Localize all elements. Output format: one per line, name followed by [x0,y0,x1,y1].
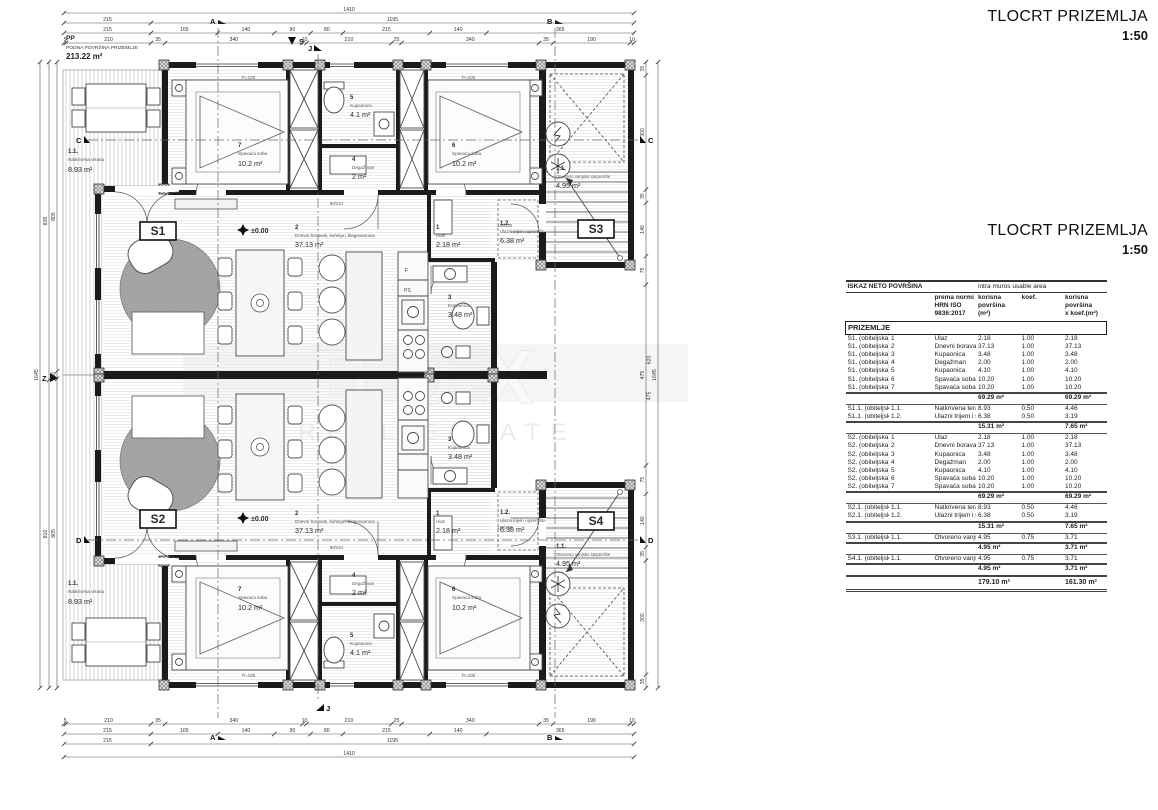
table-cell: Kupaonica [933,451,977,459]
table-cell: 2.18 [976,334,1020,343]
table-cell: Spavaća soba [933,376,977,384]
table-cell: Kupaonica [933,467,977,475]
dim-row-top-1: 1410 [62,7,636,15]
table-cell: 1.00 [1020,359,1064,367]
table-cell: 1.00 [1020,343,1064,351]
table-cell: 3.48 [1063,351,1107,359]
table-cell: 2 [889,343,933,351]
pp-label: PP [66,35,75,42]
room-name: Kupaonica [350,641,372,646]
table-cell: S1. (obiteljska) [846,343,890,351]
dim-label: 80 [324,728,330,734]
table-cell: 3.71 [1063,554,1107,564]
west-marker-label: Z [42,374,47,383]
room-name: Ulazni trijem i spremište [500,229,546,234]
table-cell: 37.13 [976,442,1020,450]
unit-tag-s2: S2 [151,512,166,526]
dim-label: 5 [64,718,67,724]
table-cell: 5 [889,467,933,475]
door-dim-label: 140/220 [497,525,513,530]
dim-label: 20 [51,372,57,378]
dim-label: 80 [324,27,330,33]
room-area: 10.2 m² [452,603,477,612]
dim-label: 215 [382,728,391,734]
dim-label-475: 475 [647,392,653,401]
table-cell: 7.65 m² [1063,522,1107,534]
table-cell: 10.20 [1063,376,1107,384]
table-cell: 2.00 [976,359,1020,367]
table-cell: 1.00 [1020,475,1064,483]
dim-label: 35 [640,66,646,72]
table-cell: 69.29 m² [976,492,1020,504]
table-row: S1.1. (obiteljska)1.2.Ulazni trijem i sp… [846,413,1107,422]
dim-row-top-4: 52103534010210253403519010 [62,37,636,45]
axis-b-top-label: B [547,17,553,26]
door-dim-label: 140/220 [497,223,513,228]
room-area: 10.2 m² [238,159,263,168]
room-area: 3.48 m² [448,310,473,319]
room-area: 6.38 m² [500,236,525,245]
col-header-area-koef: korisna površina x koef.(m²) [1063,293,1107,321]
table-cell: 1.00 [1020,442,1064,450]
table-row: S1. (obiteljska)3Kupaonica3.481.003.48 [846,351,1107,359]
table-cell: 10.20 [976,475,1020,483]
table-cell: 10.20 [1063,384,1107,393]
drawing-title-text: TLOCRT PRIZEMLJA [987,8,1148,26]
table-cell [1020,422,1064,434]
table-row: S1. (obiteljska)1Ulaz2.181.002.18 [846,334,1107,343]
table-row: S2. (obiteljska)4Degažman2.001.002.00 [846,459,1107,467]
dim-label: 10 [629,37,635,43]
table-title-hr: ISKAZ NETO POVRŠINA [846,281,977,293]
dim-label: 340 [466,37,475,43]
table-cell: 3.48 [976,451,1020,459]
table-cell: 1.00 [1020,459,1064,467]
unit-s1-geometry [63,60,635,376]
dim-label: 475 [640,371,646,380]
dim-label: 215 [103,27,112,33]
table-cell: 4.95 [976,554,1020,564]
room-area: 2.18 m² [436,240,461,249]
table-cell: 1.2. [889,512,933,521]
table-cell: 4.46 [1063,504,1107,513]
drawing-title-middle: TLOCRT PRIZEMLJA 1:50 [987,222,1148,257]
drawing-scale: 1:50 [987,28,1148,43]
table-cell: 7.65 m² [1063,422,1107,434]
page: DUX REAL ESTATE A A B B C C D D J J S [0,0,1158,810]
table-cell: 8.93 [976,504,1020,513]
table-cell: 5 [889,367,933,375]
dim-label: 90 [290,728,296,734]
kitchen-f-label: F [405,268,408,274]
table-cell: 37.13 [976,343,1020,351]
room-name: Otvoreno vanjsko stepenište [556,552,611,557]
table-cell [933,422,977,434]
dim-label: 365 [556,27,565,33]
area-table: ISKAZ NETO POVRŠINA intra muros usable a… [845,280,1107,592]
table-cell [1020,522,1064,534]
section-c-right-label: C [648,136,654,145]
room-area: 8.93 m² [68,165,93,174]
table-cell: S2. (obiteljska) [846,451,890,459]
table-row: S2.1. (obiteljska)1.1.Natkrivena terasa8… [846,504,1107,513]
room-name: Kupaonica [448,445,470,450]
axis-a-top-label: A [210,17,216,26]
table-cell: 1.2. [889,413,933,422]
table-cell: S3.1. (obiteljska) [846,533,890,543]
table-cell: 10.20 [1063,483,1107,492]
room-area: 3.48 m² [448,452,473,461]
dim-label: 1195 [387,738,398,744]
axis-a-bottom-label: A [210,733,216,742]
table-cell: 37.13 [1063,442,1107,450]
table-cell: 69.29 m² [1063,492,1107,504]
table-cell: 2 [889,442,933,450]
dim-label: 300 [640,128,646,137]
dim-label: 215 [103,728,112,734]
dim-label: 10 [629,718,635,724]
room-name: Kupaonica [350,103,372,108]
dim-label: 805 [51,529,57,538]
table-cell: 15.31 m² [976,422,1020,434]
table-cell: 6.38 [976,512,1020,521]
dim-label: 805 [51,212,57,221]
table-cell: S2. (obiteljska) [846,459,890,467]
table-row: S1. (obiteljska)7Spavaća soba10.201.0010… [846,384,1107,393]
room-area: 8.93 m² [68,597,93,606]
room-num: 1.1. [556,544,566,550]
table-cell: 4.10 [976,467,1020,475]
table-cell: 4.10 [1063,367,1107,375]
table-cell [1020,492,1064,504]
dim-label: 140 [454,27,463,33]
table-cell: 0.75 [1020,554,1064,564]
dim-label: 10 [302,718,308,724]
dim-label-620: 620 [647,356,653,365]
dim-label: 165 [180,27,189,33]
table-cell: 4.95 m² [976,564,1020,576]
table-cell [889,492,933,504]
table-cell [889,564,933,576]
room-num: 1.1. [556,166,566,172]
table-row: S2. (obiteljska)5Kupaonica4.101.004.10 [846,467,1107,475]
dim-row-bottom-1: 52103534010210253403519010 [62,718,636,726]
table-cell: 1.00 [1020,451,1064,459]
table-cell: 3.19 [1063,512,1107,521]
table-cell: Kupaonica [933,351,977,359]
table-cell [846,576,890,591]
table-cell: 0.50 [1020,413,1064,422]
room-name: Spavaća soba [238,595,268,600]
table-cell: 2.18 [1063,334,1107,343]
table-cell: 4.10 [1063,467,1107,475]
dim-label: 35 [543,37,549,43]
table-cell: 7 [889,384,933,393]
table-cell: 161.30 m² [1063,576,1107,591]
table-cell: S2. (obiteljska) [846,475,890,483]
dim-label: 210 [345,37,354,43]
table-subtotal-row: 15.31 m²7.65 m² [846,422,1107,434]
table-subtotal-row: 15.31 m²7.65 m² [846,522,1107,534]
dim-col-left-3: 80520805 [51,60,59,690]
col-header-koef: koef. [1020,293,1064,321]
table-cell: 15.31 m² [976,522,1020,534]
table-cell [1020,543,1064,555]
table-subtotal-row: 69.29 m²69.29 m² [846,393,1107,405]
table-cell: 4 [889,459,933,467]
table-total-row: 179.10 m²161.30 m² [846,576,1107,591]
room-name: Natkrivena terasa [68,589,104,594]
floor-area-title: PODNA POVRŠINA PRIZEMLJE [66,44,138,51]
dim-label: 25 [394,37,400,43]
table-cell: Ulaz [933,434,977,443]
table-cell: S4.1. (obiteljska) [846,554,890,564]
table-subtotal-row: 4.95 m²3.71 m² [846,543,1107,555]
dim-label: 10 [302,37,308,43]
table-cell: 1.00 [1020,384,1064,393]
dim-label: 75 [640,267,646,273]
table-cell: 6.38 [976,413,1020,422]
dim-label: 210 [104,37,113,43]
kitchen-ps-label: PS [404,288,411,294]
table-cell: 69.29 m² [1063,393,1107,405]
table-cell: 179.10 m² [976,576,1020,591]
room-area: 37.13 m² [295,526,324,535]
table-cell [933,564,977,576]
table-cell: Kupaonica [933,367,977,375]
table-section-row: PRIZEMLJE [846,321,1107,334]
table-cell: 3.71 [1063,533,1107,543]
room-area: 37.13 m² [295,240,324,249]
table-cell [846,393,890,405]
room-name: Ulaz [436,519,446,524]
dim-label: 810 [43,529,49,538]
dim-label: 140 [640,225,646,234]
dim-row-bottom-4: 1410 [62,751,636,759]
table-cell: 2.00 [1063,459,1107,467]
table-cell [846,543,890,555]
parapet-label: P=100 [462,75,476,80]
parapet-label: P=100 [462,673,476,678]
section-c-left-label: C [76,136,82,145]
table-cell: 1.00 [1020,376,1064,384]
table-cell: 1.00 [1020,367,1064,375]
table-cell: S1. (obiteljska) [846,334,890,343]
room-name: Spavaća soba [452,595,482,600]
table-cell: 3 [889,451,933,459]
dim-label: 340 [229,37,238,43]
table-cell: S2.1. (obiteljska) [846,512,890,521]
table-cell: 10.20 [976,483,1020,492]
dim-label: 140 [242,27,251,33]
room-name: Spavaća soba [238,151,268,156]
room-area: 4.1 m² [350,648,371,657]
table-row: S2. (obiteljska)7Spavaća soba10.201.0010… [846,483,1107,492]
table-row: S1. (obiteljska)4Degažman2.001.002.00 [846,359,1107,367]
table-cell [889,422,933,434]
dim-label: 210 [345,718,354,724]
room-name: Ulazni trijem i spremište [500,518,546,523]
table-cell: 8.93 [976,404,1020,413]
table-cell: 1.00 [1020,467,1064,475]
table-cell: 4.10 [976,367,1020,375]
table-cell: 10.20 [976,384,1020,393]
dim-label: 300 [640,613,646,622]
table-row: S2. (obiteljska)2Dnevni boravak, kuhinja… [846,442,1107,450]
table-cell: 2.00 [1063,359,1107,367]
table-cell [1020,393,1064,405]
room-area: 2 m² [352,172,367,181]
table-cell: 4.95 [976,533,1020,543]
table-section-label: PRIZEMLJE [846,321,1107,334]
dim-label: 1645 [652,369,658,381]
table-cell [889,576,933,591]
table-cell: S1.1. (obiteljska) [846,404,890,413]
drawing-title-text: TLOCRT PRIZEMLJA [987,222,1148,240]
table-cell: Natkrivena terasa [933,504,977,513]
drawing-scale: 1:50 [987,242,1148,257]
dim-label: 140 [640,516,646,525]
dim-label: 35 [155,37,161,43]
section-d-right-label: D [648,536,654,545]
table-cell: S2. (obiteljska) [846,434,890,443]
floor-plan-svg: DUX REAL ESTATE A A B B C C D D J J S [0,0,690,810]
table-cell [933,543,977,555]
table-cell: Dnevni boravak, kuhinja i blagovaonica [933,343,977,351]
table-cell: 1.00 [1020,434,1064,443]
room-area: 10.2 m² [238,603,263,612]
table-cell: S1. (obiteljska) [846,384,890,393]
table-row: S2. (obiteljska)1Ulaz2.181.002.18 [846,434,1107,443]
table-cell: 2.18 [1063,434,1107,443]
table-row: S2. (obiteljska)3Kupaonica3.481.003.48 [846,451,1107,459]
table-cell: 4.95 m² [976,543,1020,555]
room-area: 2 m² [352,588,367,597]
table-cell: 1.00 [1020,334,1064,343]
axis-b-bottom-label: B [547,733,553,742]
table-cell: Spavaća soba [933,384,977,393]
parapet-label: P=100 [242,673,256,678]
unit-tag-s1: S1 [151,224,166,238]
table-cell: Otvoreno vanjsko stepenište [933,533,977,543]
door-dim-label: 90/210 [330,545,343,550]
col-header-norm: prema normi HRN ISO 9836:2017 [933,293,977,321]
parapet-label: P=100 [242,75,256,80]
floor-area-value: 213.22 m² [66,52,103,61]
table-cell: Ulazni trijem i spremište [933,512,977,521]
table-cell: 3.19 [1063,413,1107,422]
room-name: Dnevni boravak, kuhinja i blagovaonica [295,519,375,524]
table-cell: S1. (obiteljska) [846,359,890,367]
table-cell: 6 [889,376,933,384]
drawing-title-top: TLOCRT PRIZEMLJA 1:50 [987,8,1148,43]
table-cell: S2. (obiteljska) [846,467,890,475]
room-area: 2.18 m² [436,526,461,535]
room-name: Dnevni boravak, kuhinja i blagovaonica [295,233,375,238]
table-row: S1.1. (obiteljska)1.1.Natkrivena terasa8… [846,404,1107,413]
table-cell: 6 [889,475,933,483]
table-cell [933,522,977,534]
room-name: Kupaonica [448,303,470,308]
table-cell [846,422,890,434]
table-cell: Degažman [933,459,977,467]
dim-label: 215 [103,17,112,23]
table-cell: 3 [889,351,933,359]
dim-label: 1410 [343,7,355,13]
table-cell: 0.50 [1020,404,1064,413]
table-cell: 3.48 [976,351,1020,359]
table-row: S2. (obiteljska)6Spavaća soba10.201.0010… [846,475,1107,483]
dim-label: 90 [290,27,296,33]
table-cell [1020,564,1064,576]
room-name: Degažman [352,165,375,170]
room-name: Degažman [352,581,375,586]
table-cell: S1. (obiteljska) [846,376,890,384]
table-subtotal-row: 69.29 m²69.29 m² [846,492,1107,504]
table-cell: S1. (obiteljska) [846,367,890,375]
dim-label: 1645 [34,369,40,381]
dim-label: 340 [229,718,238,724]
table-cell: 0.75 [1020,533,1064,543]
table-header-row: prema normi HRN ISO 9836:2017 korisna po… [846,293,1107,321]
room-name: Otvoreno vanjsko stepenište [556,174,611,179]
table-cell: 10.20 [1063,475,1107,483]
dim-label: 215 [382,27,391,33]
table-row: S2.1. (obiteljska)1.2.Ulazni trijem i sp… [846,512,1107,521]
level-marker-s1: ±0.00 [251,228,269,235]
table-cell: Spavaća soba [933,483,977,492]
table-cell: S2. (obiteljska) [846,483,890,492]
section-d-left-label: D [76,536,82,545]
table-cell: 1.1. [889,554,933,564]
table-cell [1020,576,1064,591]
table-title-row: ISKAZ NETO POVRŠINA intra muros usable a… [846,281,1107,293]
dim-label: 215 [103,738,112,744]
table-row: S1. (obiteljska)5Kupaonica4.101.004.10 [846,367,1107,375]
table-cell [933,576,977,591]
table-cell [846,564,890,576]
section-j-bottom-label: J [326,704,330,713]
dim-label: 1195 [387,17,398,23]
section-j-top-label: J [308,44,312,53]
dim-label: 35 [155,718,161,724]
table-cell: 1.00 [1020,483,1064,492]
room-num: 1.1. [68,581,78,587]
room-num: 1.1. [68,149,78,155]
room-num: 1.2. [500,510,510,516]
table-cell: S2. (obiteljska) [846,442,890,450]
dim-col-left-1: 1645 [34,60,42,690]
table-cell: Dnevni boravak, kuhinja i blagovaonica [933,442,977,450]
col-header-area: korisna površina (m²) [976,293,1020,321]
unit-tag-s4: S4 [589,514,604,528]
table-row: S4.1. (obiteljska)1.1.Otvoreno vanjsko s… [846,554,1107,564]
unit-tag-s3: S3 [589,222,604,236]
table-cell: 1.1. [889,404,933,413]
table-cell: 0.50 [1020,504,1064,513]
dim-label: 35 [543,718,549,724]
door-dim-label: 90/210 [330,201,343,206]
table-row: S3.1. (obiteljska)1.1.Otvoreno vanjsko s… [846,533,1107,543]
room-name: Spavaća soba [452,151,482,156]
dim-label: 190 [587,37,596,43]
table-cell: Spavaća soba [933,475,977,483]
room-name: Natkrivena terasa [68,157,104,162]
table-row: S1. (obiteljska)6Spavaća soba10.201.0010… [846,376,1107,384]
dim-label: 5 [64,37,67,43]
dim-label: 190 [587,718,596,724]
dim-label: 165 [180,728,189,734]
